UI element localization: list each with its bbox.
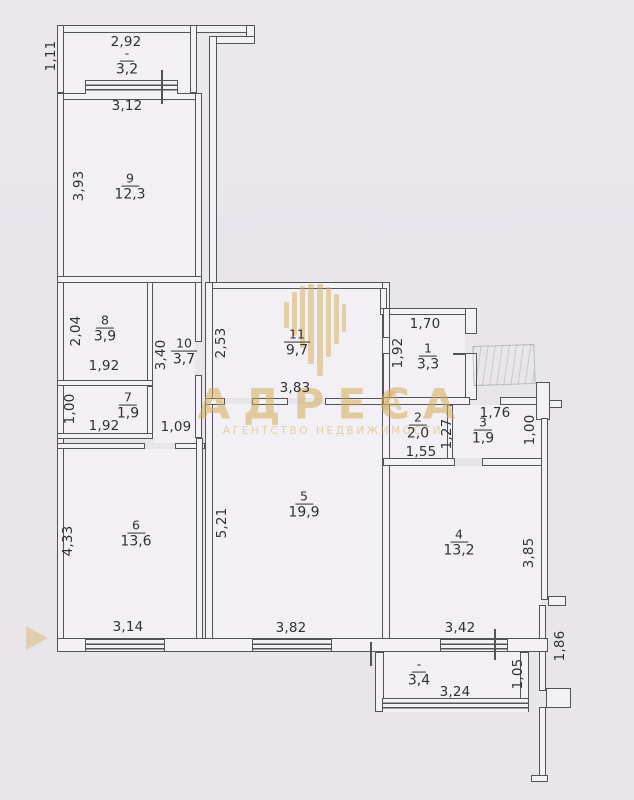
room-number: 8	[96, 314, 114, 329]
dim-r5-width: 3,82	[276, 620, 307, 636]
room-area: 3,4	[408, 673, 430, 691]
dim-r11-width: 3,83	[280, 380, 311, 396]
wall-segment	[57, 93, 64, 652]
wall-segment	[213, 36, 255, 44]
door-tick	[370, 642, 372, 666]
wall-segment	[380, 308, 477, 315]
wall-segment	[195, 282, 202, 342]
room-10-label: 10 3,7	[171, 337, 197, 370]
wall-segment	[383, 308, 390, 338]
room-9-label: 9 12,3	[114, 172, 145, 205]
dim-r3-depth: 1,00	[522, 415, 538, 446]
wall-segment	[190, 25, 197, 93]
room-number: -	[412, 658, 427, 673]
wall-segment	[196, 438, 203, 652]
door-tick	[494, 629, 496, 660]
room-number: 7	[119, 391, 137, 406]
dim-r1-width: 1,70	[410, 316, 441, 332]
dim-r11-depth: 2,53	[213, 328, 229, 359]
dim-r9-depth: 3,93	[71, 171, 87, 202]
room-balcony-bottom-label: - 3,4	[408, 658, 430, 691]
room-8-label: 8 3,9	[94, 314, 116, 347]
room-11-label: 11 9,7	[284, 328, 310, 361]
wall-segment	[383, 353, 390, 400]
room-7-label: 7 1,9	[117, 391, 139, 424]
dim-r8-depth: 2,04	[68, 316, 84, 347]
room-4-label: 4 13,2	[443, 528, 474, 561]
window	[252, 639, 332, 651]
room-area: 13,2	[443, 543, 474, 561]
room-area: 2,0	[407, 426, 429, 444]
wall-segment	[195, 375, 202, 438]
wall-segment	[57, 380, 153, 386]
wall-segment	[57, 443, 145, 449]
room-number: 9	[121, 172, 139, 187]
dim-r9-width: 3,12	[112, 98, 143, 114]
wall-segment	[252, 398, 288, 405]
room-area: 3,3	[417, 357, 439, 375]
door-tick	[453, 353, 465, 355]
wall-segment	[325, 398, 390, 405]
dim-stair-depth: 1,86	[552, 631, 568, 662]
dim-r2-width: 1,55	[406, 444, 437, 460]
staircase-hatch	[472, 344, 535, 386]
room-area: 13,6	[120, 534, 151, 552]
room-number: 4	[450, 528, 468, 543]
room-number: 1	[419, 342, 437, 357]
room-area: 1,9	[117, 406, 139, 424]
wall-segment	[147, 386, 153, 439]
room-1-label: 1 3,3	[417, 342, 439, 375]
room-balcony-top-label: - 3,2	[116, 47, 138, 80]
room-area: 19,9	[288, 505, 319, 523]
door-tick	[161, 70, 163, 104]
room-number: 5	[295, 490, 313, 505]
floor-plan: АДРЕСА АГЕНТСТВО НЕДВИЖИМОСТИ А 2,92 3,1…	[0, 0, 634, 800]
wall-segment	[531, 775, 548, 782]
room-number: 11	[284, 328, 310, 343]
room-number: 10	[171, 337, 197, 352]
watermark-fragment	[26, 626, 48, 650]
room-area: 9,7	[286, 343, 308, 361]
room-number: 6	[127, 519, 145, 534]
wall-segment	[482, 458, 548, 466]
dim-r1-depth: 1,92	[390, 338, 406, 369]
dim-r10-depth: 3,40	[153, 340, 169, 371]
room-area: 1,9	[472, 431, 494, 449]
wall-segment	[548, 596, 566, 606]
dim-r6-depth: 4,33	[60, 526, 76, 557]
dim-balcony-top-depth: 1,11	[43, 41, 59, 72]
room-number: -	[120, 47, 135, 62]
dim-r2-depth: 1,27	[439, 419, 455, 450]
wall-segment	[500, 397, 538, 405]
wall-segment	[195, 93, 202, 283]
dim-r10-width: 1,09	[161, 419, 192, 435]
dim-r7-depth: 1,00	[62, 394, 78, 425]
room-2-label: 2 2,0	[407, 411, 429, 444]
wall-segment	[205, 282, 213, 652]
wall-segment	[536, 382, 550, 420]
wall-segment	[205, 282, 390, 289]
dim-r4-width: 3,42	[445, 620, 476, 636]
wall-segment	[57, 25, 255, 33]
wall-segment	[539, 707, 546, 781]
room-number: 3	[474, 416, 492, 431]
balcony-railing	[382, 698, 529, 712]
dim-r8-width: 1,92	[89, 358, 120, 374]
room-area: 12,3	[114, 187, 145, 205]
wall-segment	[465, 308, 477, 334]
room-area: 3,2	[116, 62, 138, 80]
window	[440, 639, 508, 651]
room-3-label: 3 1,9	[472, 416, 494, 449]
room-area: 3,9	[94, 329, 116, 347]
room-number: 2	[409, 411, 427, 426]
dim-r7-width: 1,92	[89, 418, 120, 434]
window	[85, 80, 178, 94]
wall-segment	[205, 398, 225, 405]
wall-segment	[57, 276, 202, 283]
wall-segment	[541, 418, 548, 600]
dim-balcony-bottom-width: 3,24	[440, 684, 471, 700]
dim-balcony-bottom-depth: 1,05	[510, 659, 526, 690]
wall-segment	[209, 36, 217, 288]
room-area: 3,7	[173, 352, 195, 370]
dim-r4-depth: 3,85	[521, 538, 537, 569]
window	[85, 639, 165, 651]
room-6-label: 6 13,6	[120, 519, 151, 552]
dim-r5-depth: 5,21	[214, 508, 230, 539]
wall-segment	[383, 397, 470, 405]
room-5-label: 5 19,9	[288, 490, 319, 523]
wall-segment	[546, 688, 571, 708]
dim-r6-width: 3,14	[113, 619, 144, 635]
